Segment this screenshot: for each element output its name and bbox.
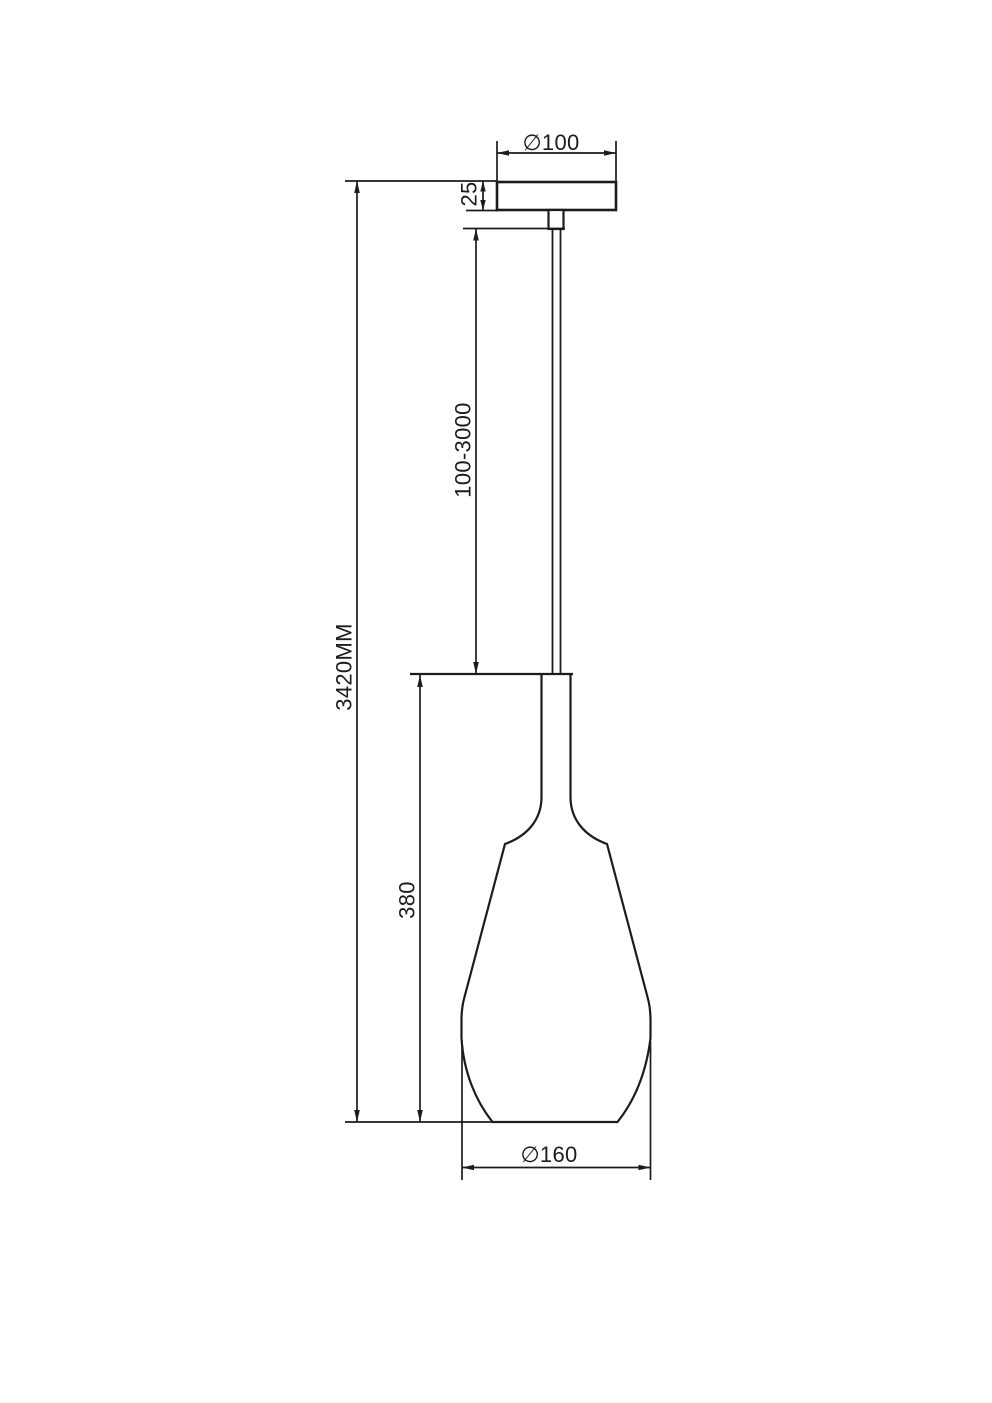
suspension-length-label: 100-3000 xyxy=(451,402,476,497)
arrow-left-icon xyxy=(462,1165,474,1171)
arrow-up-icon xyxy=(473,229,479,241)
canopy-height-label: 25 xyxy=(457,181,482,206)
suspension-cord xyxy=(553,229,561,674)
arrow-up-icon xyxy=(417,675,423,687)
canopy-stem-connector xyxy=(549,210,564,229)
arrow-up-icon xyxy=(354,181,360,193)
shade-diameter-label: ∅160 xyxy=(520,1142,577,1167)
canopy xyxy=(497,182,616,210)
shade-height-label: 380 xyxy=(395,881,420,919)
shade-outline xyxy=(462,674,651,1122)
dimension-canopy-diameter: ∅100 xyxy=(497,130,616,181)
dimension-suspension-length: 100-3000 xyxy=(451,229,566,675)
dimension-drawing: ∅100 25 100-3000 xyxy=(0,0,992,1403)
arrow-right-icon xyxy=(639,1165,651,1171)
pendant-lamp xyxy=(410,182,651,1122)
dimension-shade-diameter: ∅160 xyxy=(462,1042,651,1180)
arrow-down-icon xyxy=(417,1110,423,1122)
arrow-down-icon xyxy=(354,1110,360,1122)
dimension-shade-height: 380 xyxy=(395,675,423,1122)
dimension-canopy-height: 25 xyxy=(345,181,498,211)
arrow-left-icon xyxy=(497,150,509,155)
arrow-right-icon xyxy=(604,150,616,155)
overall-height-label: 3420MM xyxy=(332,623,357,710)
arrow-down-icon xyxy=(473,662,479,674)
canopy-diameter-label: ∅100 xyxy=(522,130,579,155)
drawing-canvas: ∅100 25 100-3000 xyxy=(0,0,992,1403)
